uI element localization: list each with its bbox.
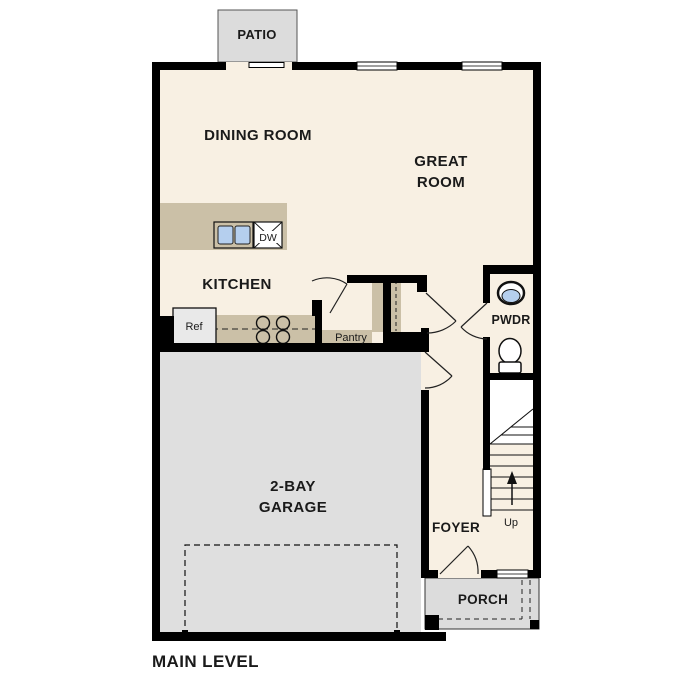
toilet-bowl [499, 339, 521, 364]
porch-post [530, 620, 539, 629]
dishwasher-label: DW [259, 232, 277, 244]
wall-segment [383, 277, 391, 345]
pantry-label: Pantry [335, 332, 367, 344]
sink-basin-right [235, 226, 250, 244]
garage-label-line1: 2-BAY [270, 478, 316, 495]
stair-handrail [483, 469, 491, 516]
powder-room-label: PWDR [492, 313, 531, 327]
stairs-up-label: Up [504, 517, 518, 529]
wall-segment [528, 570, 541, 578]
porch-post [425, 615, 439, 630]
wall-segment [483, 380, 490, 470]
porch-label: PORCH [458, 592, 508, 607]
garage-label-line2: GARAGE [259, 499, 327, 516]
pantry-shelf [372, 278, 383, 332]
floorplan-drawing: PATIO DINING ROOM GREAT ROOM KITCHEN PWD… [0, 0, 687, 687]
great-room-label-line1: GREAT [414, 153, 467, 170]
wall-segment [421, 390, 429, 578]
wall-segment [483, 373, 533, 380]
dining-room-label: DINING ROOM [204, 127, 312, 144]
patio-label: PATIO [237, 27, 276, 42]
powder-sink-basin [502, 290, 520, 303]
wall-segment [428, 570, 438, 578]
wall-segment [315, 300, 322, 345]
toilet-tank [499, 362, 521, 373]
great-room-label-line2: ROOM [417, 174, 465, 191]
wall-segment [481, 570, 497, 578]
wall-segment [421, 328, 429, 352]
stair-landing [490, 380, 533, 444]
kitchen-label: KITCHEN [202, 276, 271, 293]
plan-title: MAIN LEVEL [152, 652, 259, 671]
floorplan-canvas: PATIO DINING ROOM GREAT ROOM KITCHEN PWD… [0, 0, 687, 687]
wall-segment [533, 62, 541, 578]
wall-segment [417, 275, 427, 292]
wall-segment [152, 632, 446, 641]
sliding-door-panel [249, 63, 284, 68]
foyer-label: FOYER [432, 520, 480, 535]
wall-segment [483, 265, 541, 274]
wall-segment [158, 316, 174, 344]
refrigerator-label: Ref [185, 321, 203, 333]
sink-basin-left [218, 226, 233, 244]
wall-segment [483, 274, 490, 303]
